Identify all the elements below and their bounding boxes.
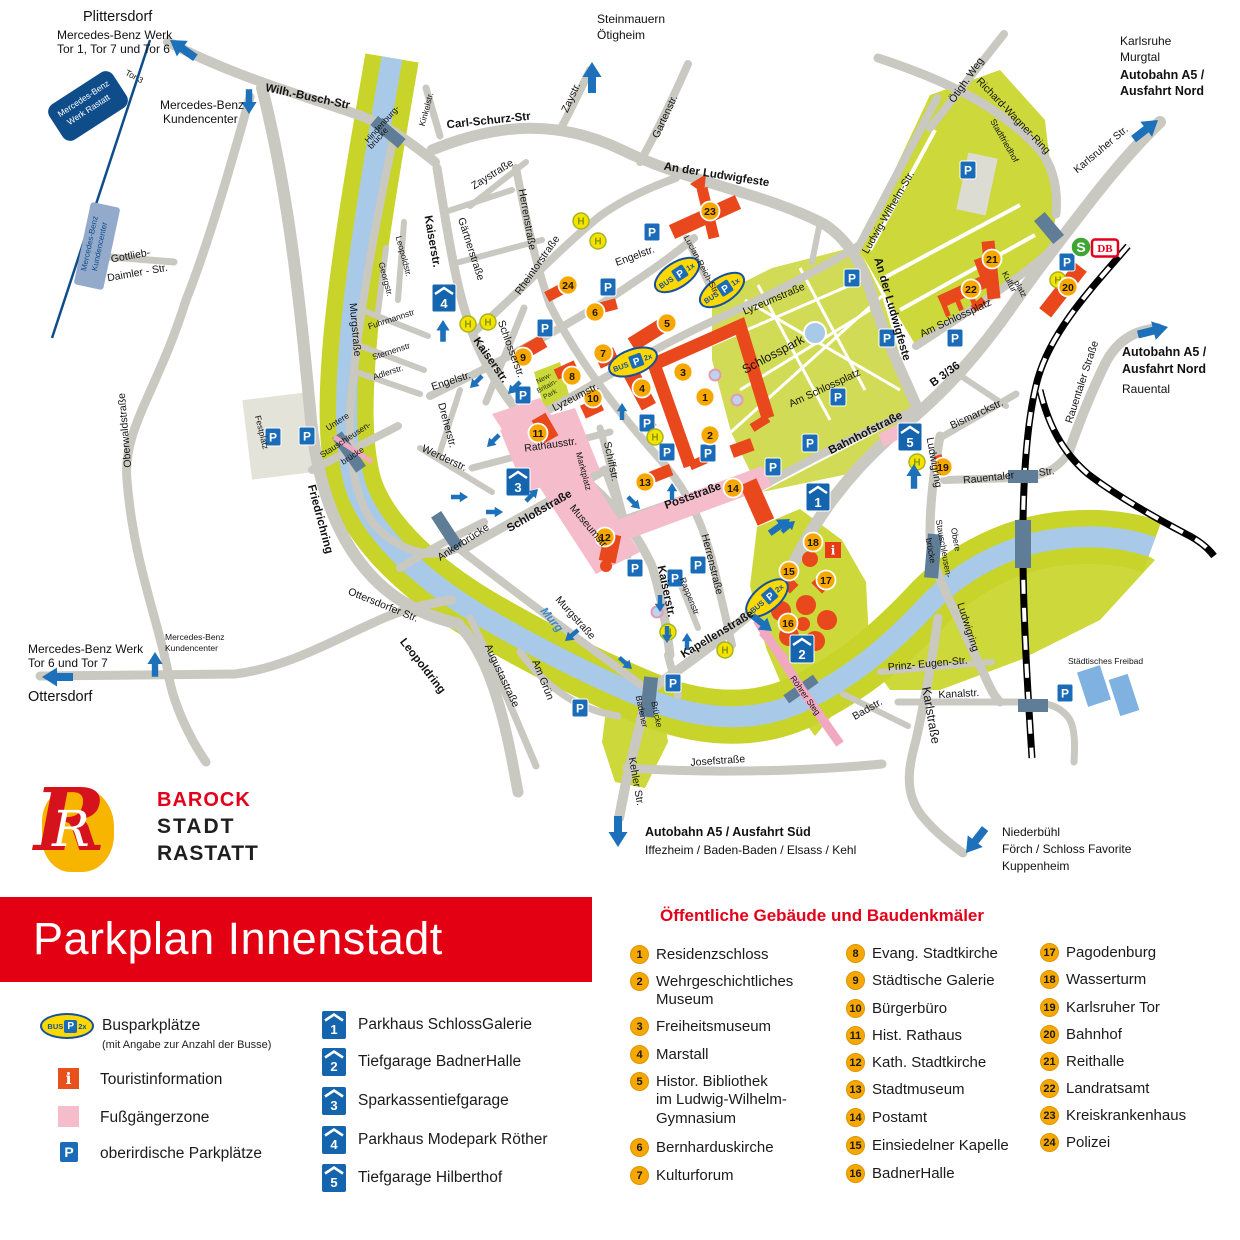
p-icon: P [694, 559, 702, 573]
dest-label: Iffezheim / Baden-Baden / Elsass / Kehl [645, 843, 856, 857]
dest-label: Autobahn A5 / Ausfahrt Süd [645, 825, 811, 839]
building-label: Postamt [872, 1109, 927, 1128]
building-label: Einsiedelner Kapelle [872, 1137, 1009, 1156]
building-label: Evang. Stadtkirche [872, 945, 998, 964]
tourist-info-icon: i [825, 542, 841, 558]
h-icon: H [721, 646, 728, 657]
building-number: 23 [1040, 1106, 1059, 1125]
building-label: Freiheitsmuseum [656, 1018, 771, 1037]
p-icon: P [303, 430, 311, 444]
building-number: 5 [630, 1072, 649, 1091]
surface-parking-legend-icon: P [60, 1142, 78, 1162]
building-label: Kreiskrankenhaus [1066, 1107, 1186, 1126]
building-label: Reithalle [1066, 1053, 1124, 1072]
marker-number: 21 [986, 254, 998, 266]
building-list-item: 22Landratsamt [1040, 1079, 1149, 1098]
street-label: Engelstr. [614, 244, 656, 269]
title-banner: Parkplan Innenstadt [0, 897, 592, 982]
buildings-list-title: Öffentliche Gebäude und Baudenkmäler [660, 906, 984, 926]
parkhaus-legend-label: Tiefgarage BadnerHalle [358, 1053, 521, 1071]
marker-number: 23 [704, 206, 716, 218]
dest-label: Mercedes-Benz Werk [57, 28, 173, 42]
building-number: 9 [846, 971, 865, 990]
building-number: 13 [846, 1080, 865, 1099]
marker-number: 5 [664, 318, 670, 330]
marker-number: 22 [965, 284, 977, 296]
building-label: Bürgerbüro [872, 1000, 947, 1019]
dest-label: Niederbühl [1002, 825, 1060, 839]
building-label: Kulturforum [656, 1167, 734, 1186]
legend-parking-label: oberirdische Parkplätze [100, 1145, 262, 1163]
building-number: 14 [846, 1108, 865, 1127]
p-icon: P [671, 572, 679, 586]
p-icon: P [964, 164, 972, 178]
building-number: 2 [630, 972, 649, 991]
dest-label: Tor 6 und Tor 7 [28, 656, 108, 670]
building-list-item: 7Kulturforum [630, 1166, 734, 1185]
bus-parking-legend-icon: BUSP2x [40, 1013, 94, 1039]
p-icon: P [704, 447, 712, 461]
building-number: 17 [1040, 943, 1059, 962]
building-list-item: 6Bernharduskirche [630, 1138, 774, 1157]
parkhaus-legend-icon: 3 [322, 1087, 346, 1115]
building-list-item: 13Stadtmuseum [846, 1080, 965, 1099]
building-label: Stadtmuseum [872, 1081, 965, 1100]
parkhaus-number: 2 [798, 647, 805, 662]
building-label: Pagodenburg [1066, 944, 1156, 963]
parkplan-page: Mercedes-Benz Werk Rastatt Mercedes-Benz… [0, 0, 1240, 1240]
building-list-item: 2Wehrgeschichtliches Museum [630, 972, 793, 1010]
parkhaus-legend-icon: 5 [322, 1164, 346, 1192]
legend-bus-sublabel: (mit Angabe zur Anzahl der Busse) [102, 1039, 271, 1051]
street-label: Rauentaler [963, 469, 1016, 486]
building-number: 22 [1040, 1079, 1059, 1098]
marker-number: 15 [783, 566, 795, 578]
parkhaus-legend-icon: 1 [322, 1011, 346, 1039]
building-label: Kath. Stadtkirche [872, 1054, 986, 1073]
parkhaus-legend-label: Tiefgarage Hilberthof [358, 1169, 502, 1187]
building-number: 1 [630, 945, 649, 964]
p-icon: P [604, 281, 612, 295]
p-icon: P [834, 391, 842, 405]
building-label: Hist. Rathaus [872, 1027, 962, 1046]
p-icon: P [669, 677, 677, 691]
street-label: Wilh.-Busch-Str [264, 82, 351, 112]
p-icon: P [631, 562, 639, 576]
parkhaus-number: 3 [330, 1098, 337, 1113]
dest-label: Ausfahrt Nord [1120, 84, 1204, 98]
building-number: 20 [1040, 1025, 1059, 1044]
page-title: Parkplan Innenstadt [0, 897, 592, 981]
h-icon: H [577, 217, 584, 228]
parkhaus-number: 1 [814, 495, 821, 510]
logo-line-barock: BAROCK [157, 789, 251, 812]
marker-number: 11 [532, 428, 543, 440]
dest-label: Murgtal [1120, 50, 1160, 64]
parkhaus-legend-label: Parkhaus SchlossGalerie [358, 1016, 532, 1034]
street-label: Leopoldstr. [394, 235, 414, 278]
building-list-item: 24Polizei [1040, 1133, 1110, 1152]
building-label: Wasserturm [1066, 971, 1146, 990]
marker-number: 8 [569, 371, 575, 383]
p-icon: P [848, 272, 856, 286]
p-icon: P [769, 461, 777, 475]
p-icon: P [1063, 256, 1071, 270]
marker-number: 4 [639, 383, 645, 395]
marker-number: 2 [707, 430, 713, 442]
pedestrian-zone-legend-icon [58, 1106, 79, 1127]
logo-white-monogram: R [52, 800, 90, 858]
p-icon: P [648, 226, 656, 240]
city-map: Mercedes-Benz Werk Rastatt Mercedes-Benz… [0, 0, 1240, 897]
legend-bus-label: Busparkplätze [102, 1017, 200, 1035]
parkhaus-number: 2 [330, 1059, 337, 1074]
parkhaus-number: 5 [906, 435, 913, 450]
tourist-info-legend-icon: i [58, 1068, 79, 1089]
building-number: 24 [1040, 1133, 1059, 1152]
dest-label: Ötigheim [597, 28, 645, 42]
barock-stadt-logo: R R [36, 786, 114, 874]
building-number: 12 [846, 1053, 865, 1072]
poi-label: Städtisches Freibad [1068, 656, 1143, 666]
parkhaus-number: 4 [330, 1137, 338, 1152]
dest-label: Kuppenheim [1002, 859, 1069, 873]
street-label: Bismarckstr. [948, 397, 1005, 432]
building-list-item: 15Einsiedelner Kapelle [846, 1136, 1009, 1155]
dest-label: Ottersdorf [28, 689, 93, 705]
p-icon: P [1061, 687, 1069, 701]
dest-label: Mercedes-Benz [160, 98, 244, 112]
street-label: Str. [1038, 465, 1055, 479]
building-list-item: 5Histor. Bibliothek im Ludwig-Wilhelm- G… [630, 1072, 787, 1128]
building-list-item: 16BadnerHalle [846, 1164, 955, 1183]
building-label: Histor. Bibliothek im Ludwig-Wilhelm- Gy… [656, 1073, 787, 1129]
building-list-item: 4Marstall [630, 1045, 709, 1064]
p-icon: P [519, 389, 527, 403]
dest-label: Kundencenter [163, 112, 238, 126]
building-label: Bernharduskirche [656, 1139, 774, 1158]
building-number: 21 [1040, 1052, 1059, 1071]
freibad-buildings [1077, 665, 1139, 716]
marker-number: 6 [592, 307, 598, 319]
legend-info-label: Touristinformation [100, 1071, 222, 1089]
p-icon: P [663, 446, 671, 460]
dest-label: Kundencenter [165, 643, 218, 653]
building-label: Karlsruher Tor [1066, 999, 1160, 1018]
building-list-item: 14Postamt [846, 1108, 927, 1127]
parkhaus-number: 3 [514, 480, 521, 495]
logo-line-rastatt: RASTATT [157, 842, 259, 866]
building-number: 3 [630, 1017, 649, 1036]
marker-number: 18 [807, 537, 819, 549]
parkhaus-legend-label: Sparkassentiefgarage [358, 1092, 509, 1110]
parkhaus-number: 5 [330, 1175, 337, 1190]
marker-number: 1 [702, 392, 708, 404]
p-icon: P [643, 417, 651, 431]
building-label: Residenzschloss [656, 946, 769, 965]
building-list-item: 17Pagodenburg [1040, 943, 1156, 962]
dest-label: Mercedes-Benz [165, 632, 225, 642]
street-label: Gartenstr. [650, 93, 680, 140]
street-label: Obere [949, 527, 963, 552]
building-list-item: 1Residenzschloss [630, 945, 769, 964]
marker-number: 3 [680, 367, 686, 379]
street-label: Kanalstr. [938, 687, 979, 701]
dest-label: Förch / Schloss Favorite [1002, 842, 1132, 856]
bus-count: 2x [78, 1022, 86, 1031]
building-number: 6 [630, 1138, 649, 1157]
building-label: Städtische Galerie [872, 972, 995, 991]
parkhaus-number: 1 [330, 1022, 337, 1037]
sbahn-logo: S [1071, 237, 1091, 257]
building-number: 10 [846, 999, 865, 1018]
building-number: 8 [846, 944, 865, 963]
i-letter: i [831, 544, 836, 558]
s-letter: S [1076, 239, 1085, 255]
dest-label: Steinmauern [597, 12, 665, 26]
building-list-item: 19Karlsruher Tor [1040, 998, 1160, 1017]
building-label: Marstall [656, 1046, 709, 1065]
dest-label: Ausfahrt Nord [1122, 362, 1206, 376]
parkhaus-legend-label: Parkhaus Modepark Röther [358, 1131, 548, 1149]
bus-p-icon: P [64, 1020, 77, 1033]
building-number: 16 [846, 1164, 865, 1183]
street-label: Herrenstraße [516, 188, 539, 251]
building-number: 11 [846, 1026, 865, 1045]
building-number: 19 [1040, 998, 1059, 1017]
building-label: Wehrgeschichtliches Museum [656, 973, 793, 1010]
building-list-item: 18Wasserturm [1040, 970, 1146, 989]
building-list-item: 12Kath. Stadtkirche [846, 1053, 986, 1072]
schlosspark-pond [804, 322, 826, 344]
building-number: 18 [1040, 970, 1059, 989]
bus-label: BUS [47, 1022, 63, 1031]
p-icon: P [883, 332, 891, 346]
marker-number: 24 [562, 280, 574, 292]
building-list-item: 11Hist. Rathaus [846, 1026, 962, 1045]
db-letters: DB [1097, 243, 1113, 255]
dest-label: Mercedes-Benz Werk [28, 642, 144, 656]
marker-number: 17 [820, 575, 832, 587]
marker-number: 7 [600, 348, 606, 360]
building-list-item: 9Städtische Galerie [846, 971, 995, 990]
street-label: Leopoldring [397, 636, 447, 696]
building-list-item: 23Kreiskrankenhaus [1040, 1106, 1186, 1125]
p-icon: P [806, 437, 814, 451]
building-list-item: 8Evang. Stadtkirche [846, 944, 998, 963]
db-logo: DB [1092, 240, 1118, 257]
parkhaus-legend-icon: 4 [322, 1126, 346, 1154]
h-icon: H [464, 320, 471, 331]
dest-label: Autobahn A5 / [1122, 345, 1207, 359]
dest-label: Tor 1, Tor 7 und Tor 6 [57, 42, 170, 56]
building-list-item: 3Freiheitsmuseum [630, 1017, 771, 1036]
building-list-item: 20Bahnhof [1040, 1025, 1122, 1044]
marker-number: 16 [782, 618, 794, 630]
parkhaus-legend-icon: 2 [322, 1048, 346, 1076]
logo-line-stadt: STADT [157, 815, 235, 839]
dest-label: Rauental [1122, 382, 1170, 396]
marker-number: 13 [639, 477, 651, 489]
building-number: 4 [630, 1045, 649, 1064]
marker-number: 14 [727, 483, 739, 495]
dest-label: Karlsruhe [1120, 34, 1172, 48]
building-number: 7 [630, 1166, 649, 1185]
building-label: BadnerHalle [872, 1165, 955, 1184]
building-label: Bahnhof [1066, 1026, 1122, 1045]
street-label: Daimler - Str. [106, 262, 168, 284]
h-icon: H [484, 318, 491, 329]
building-list-item: 21Reithalle [1040, 1052, 1124, 1071]
h-icon: H [594, 237, 601, 248]
mercedes-area: Mercedes-Benz Werk Rastatt Mercedes-Benz… [45, 40, 150, 338]
p-icon: P [541, 322, 549, 336]
street-label: Kaiserstr. [421, 215, 442, 269]
building-number: 15 [846, 1136, 865, 1155]
parkhaus-number: 4 [440, 296, 448, 311]
building-list-item: 10Bürgerbüro [846, 999, 947, 1018]
building-label: Landratsamt [1066, 1080, 1149, 1099]
p-icon: P [576, 702, 584, 716]
marker-number: 20 [1062, 282, 1074, 294]
h-icon: H [651, 433, 658, 444]
dest-label: Autobahn A5 / [1120, 68, 1205, 82]
street-label: Adlerstr. [372, 363, 405, 382]
legend-pedestrian-label: Fußgängerzone [100, 1109, 209, 1127]
dest-label: Plittersdorf [83, 9, 153, 25]
p-icon: P [951, 332, 959, 346]
building-label: Polizei [1066, 1134, 1110, 1153]
tor3-label: Tor 3 [124, 67, 146, 85]
